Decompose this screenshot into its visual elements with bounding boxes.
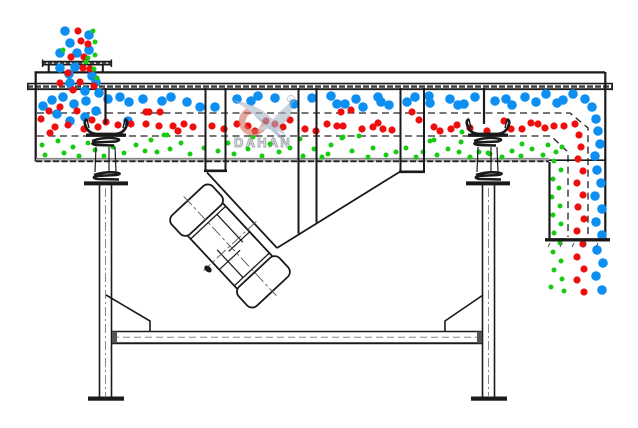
svg-text:DAHAN: DAHAN	[234, 135, 292, 150]
svg-text:R: R	[289, 97, 293, 103]
